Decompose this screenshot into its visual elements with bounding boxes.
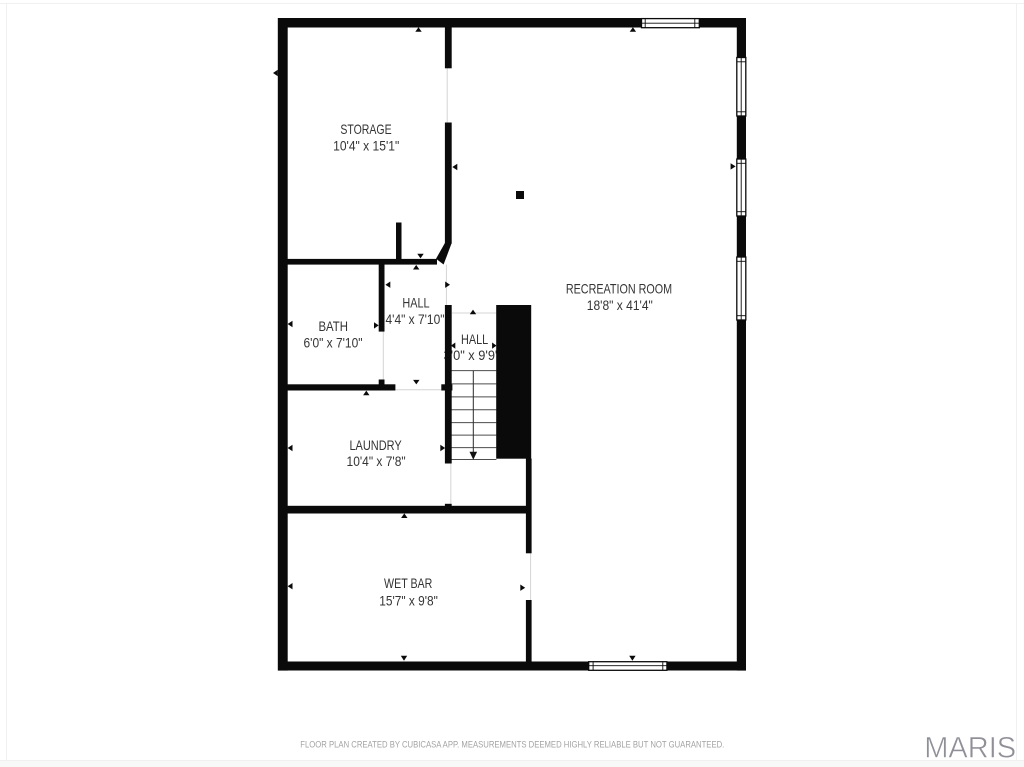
svg-text:6'0" x 7'10": 6'0" x 7'10": [304, 336, 363, 351]
svg-text:15'7" x 9'8": 15'7" x 9'8": [379, 593, 438, 608]
svg-text:BATH: BATH: [318, 319, 348, 334]
svg-text:STORAGE: STORAGE: [340, 122, 391, 137]
svg-text:10'4" x 7'8": 10'4" x 7'8": [347, 454, 406, 469]
svg-text:3'0" x 9'9": 3'0" x 9'9": [444, 348, 500, 363]
svg-text:HALL: HALL: [461, 332, 489, 347]
svg-text:MARIS: MARIS: [924, 732, 1016, 765]
svg-text:4'4" x 7'10": 4'4" x 7'10": [386, 312, 445, 327]
svg-text:10'4" x 15'1": 10'4" x 15'1": [333, 138, 399, 153]
svg-text:RECREATION ROOM: RECREATION ROOM: [566, 281, 672, 296]
svg-text:18'8" x 41'4": 18'8" x 41'4": [587, 298, 653, 313]
svg-text:HALL: HALL: [402, 296, 430, 311]
svg-text:FLOOR PLAN CREATED BY CUBICASA: FLOOR PLAN CREATED BY CUBICASA APP. MEAS…: [300, 738, 724, 749]
svg-text:WET BAR: WET BAR: [384, 576, 432, 591]
svg-text:LAUNDRY: LAUNDRY: [349, 438, 401, 453]
